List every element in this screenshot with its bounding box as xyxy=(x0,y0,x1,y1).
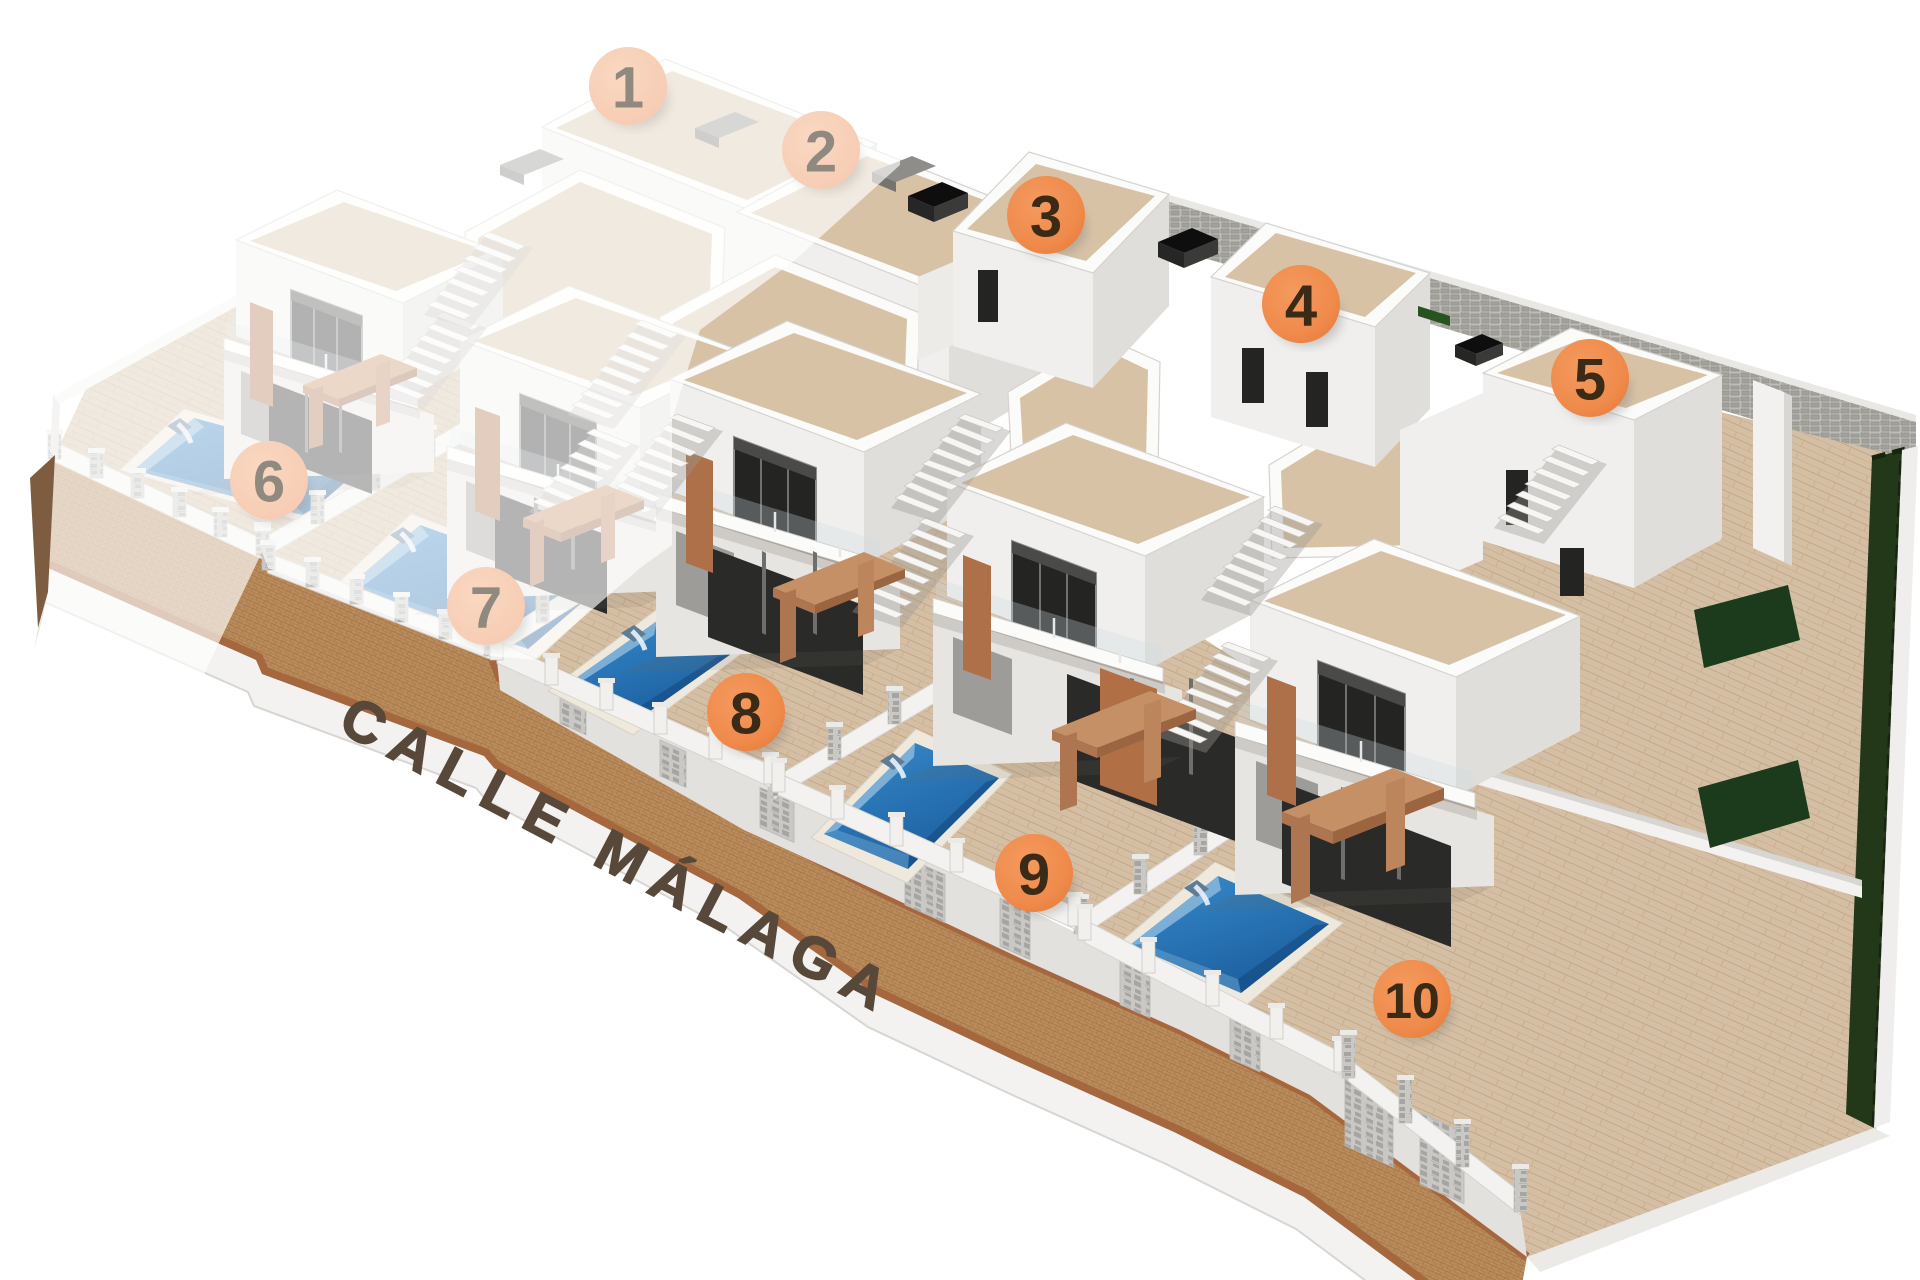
svg-text:9: 9 xyxy=(1018,843,1050,908)
svg-text:8: 8 xyxy=(730,682,762,747)
svg-text:7: 7 xyxy=(470,576,502,641)
svg-text:1: 1 xyxy=(612,56,644,121)
svg-text:3: 3 xyxy=(1030,185,1062,250)
svg-text:6: 6 xyxy=(253,450,285,515)
svg-text:4: 4 xyxy=(1285,274,1317,339)
svg-text:2: 2 xyxy=(805,120,837,185)
svg-text:10: 10 xyxy=(1384,973,1440,1029)
svg-text:5: 5 xyxy=(1574,348,1606,413)
